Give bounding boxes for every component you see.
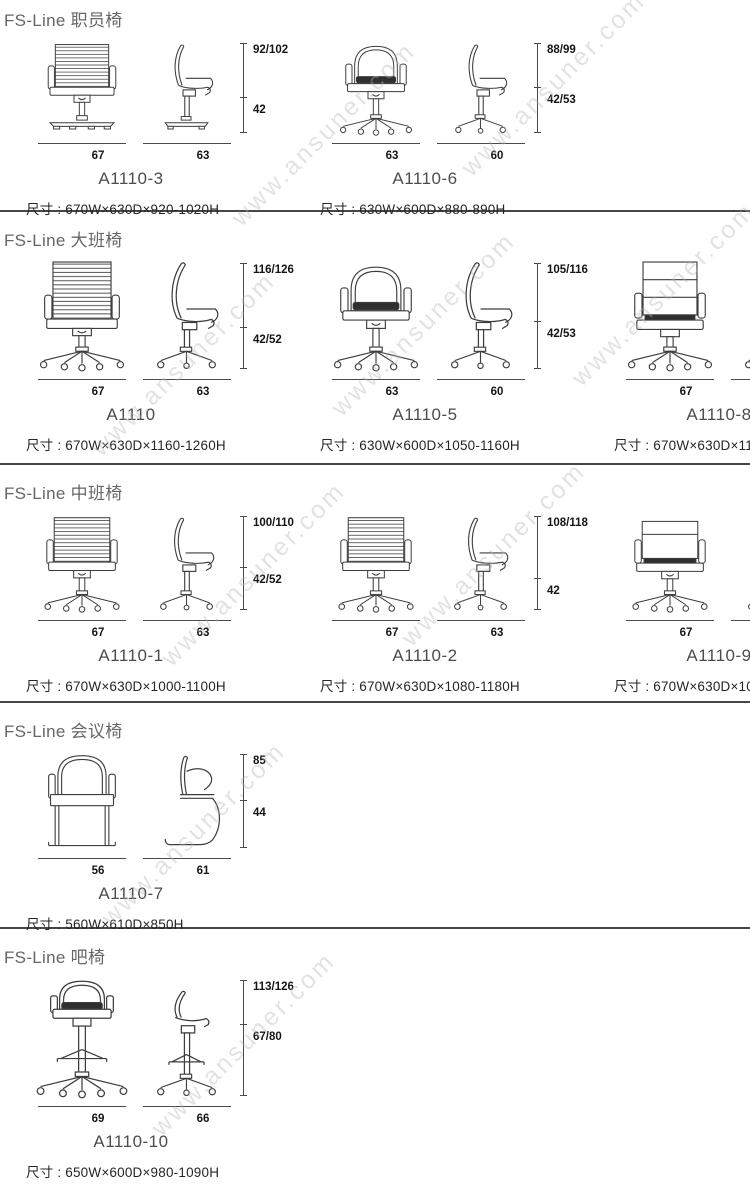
chair-card: 100/110 42/52 67 63 A1110-9 尺寸 : 670W×63… xyxy=(614,514,750,695)
width-dimension: 67 xyxy=(26,620,138,641)
section-midback-chairs: FS-Line 中班椅 100/110 42/52 67 63 A1110-1 … xyxy=(0,463,750,701)
width-dimension: 56 xyxy=(26,858,138,879)
dim-depth: 63 xyxy=(197,386,210,398)
dim-width: 69 xyxy=(92,1113,105,1125)
section-title: FS-Line 职员椅 xyxy=(4,6,750,31)
model-number: A1110-8 xyxy=(614,405,750,425)
chair-side-drawing xyxy=(138,514,236,614)
size-spec: 尺寸 : 630W×600D×880-890H xyxy=(320,198,588,218)
depth-dimension: 61 xyxy=(138,858,236,879)
chair-card: 105/116 42/53 63 60 A1110-5 尺寸 : 630W×60… xyxy=(320,261,588,454)
section-executive-chairs: FS-Line 大班椅 116/126 42/52 67 63 A1110 尺寸… xyxy=(0,210,750,463)
dim-seat-height: 67/80 xyxy=(253,1031,282,1043)
dim-depth: 63 xyxy=(197,627,210,639)
chair-side-drawing xyxy=(726,261,750,373)
dim-width: 56 xyxy=(92,865,105,877)
width-dimension: 69 xyxy=(26,1106,138,1127)
chair-front-drawing xyxy=(614,514,726,614)
dim-total-height: 113/126 xyxy=(253,981,294,993)
dim-seat-height: 42/52 xyxy=(253,334,282,346)
height-dimension: 108/118 42 xyxy=(530,514,588,614)
chair-card: 88/99 42/53 63 60 A1110-6 尺寸 : 630W×600D… xyxy=(320,41,588,218)
model-number: A1110-7 xyxy=(26,884,236,904)
chair-card: 113/126 67/80 69 66 A1110-10 尺寸 : 650W×6… xyxy=(26,978,294,1181)
dim-seat-height: 42 xyxy=(547,585,560,597)
size-spec: 尺寸 : 630W×600D×1050-1160H xyxy=(320,434,588,454)
chair-front-drawing xyxy=(26,978,138,1100)
height-dimension: 85 44 xyxy=(236,752,294,852)
dim-width: 67 xyxy=(92,627,105,639)
section-title: FS-Line 大班椅 xyxy=(4,226,750,251)
dim-total-height: 105/116 xyxy=(547,264,588,276)
catalog-page: www.ansuner.com www.ansuner.com www.ansu… xyxy=(0,0,750,1188)
width-dimension: 67 xyxy=(26,143,138,164)
depth-dimension: 66 xyxy=(138,1106,236,1127)
dim-total-height: 108/118 xyxy=(547,517,588,529)
dim-width: 67 xyxy=(92,150,105,162)
depth-dimension: 63 xyxy=(726,620,750,641)
section-staff-chairs: FS-Line 职员椅 92/102 42 67 63 A1110-3 尺寸 :… xyxy=(0,0,750,210)
chair-side-drawing xyxy=(138,978,236,1100)
section-conference-chairs: FS-Line 会议椅 85 44 56 61 A1110-7 尺寸 : 560… xyxy=(0,701,750,927)
width-dimension: 67 xyxy=(614,620,726,641)
height-dimension: 105/116 42/53 xyxy=(530,261,588,373)
chair-front-drawing xyxy=(26,261,138,373)
chair-card: 116/126 42/52 67 63 A1110-8 尺寸 : 670W×63… xyxy=(614,261,750,454)
dim-total-height: 116/126 xyxy=(253,264,294,276)
size-spec: 尺寸 : 650W×600D×980-1090H xyxy=(26,1161,294,1181)
section-bar-chairs: FS-Line 吧椅 113/126 67/80 69 66 A1110-10 … xyxy=(0,927,750,1188)
dim-seat-height: 44 xyxy=(253,807,266,819)
dim-seat-height: 42 xyxy=(253,104,266,116)
dim-seat-height: 42/52 xyxy=(253,574,282,586)
depth-dimension: 63 xyxy=(138,620,236,641)
section-title: FS-Line 中班椅 xyxy=(4,479,750,504)
model-number: A1110-2 xyxy=(320,646,530,666)
depth-dimension: 60 xyxy=(432,379,530,400)
height-dimension: 116/126 42/52 xyxy=(236,261,294,373)
dim-depth: 63 xyxy=(197,150,210,162)
chair-card: 108/118 42 67 63 A1110-2 尺寸 : 670W×630D×… xyxy=(320,514,588,695)
chair-front-drawing xyxy=(320,41,432,137)
model-number: A1110-5 xyxy=(320,405,530,425)
model-number: A1110-6 xyxy=(320,169,530,189)
dim-depth: 61 xyxy=(197,865,210,877)
dim-depth: 60 xyxy=(491,150,504,162)
chair-side-drawing xyxy=(138,41,236,137)
width-dimension: 67 xyxy=(614,379,726,400)
dim-width: 63 xyxy=(386,150,399,162)
size-spec: 尺寸 : 670W×630D×1080-1180H xyxy=(320,675,588,695)
chair-front-drawing xyxy=(26,514,138,614)
dim-width: 67 xyxy=(92,386,105,398)
size-spec: 尺寸 : 670W×630D×1160-1260H xyxy=(614,434,750,454)
chair-card: 85 44 56 61 A1110-7 尺寸 : 560W×610D×850H xyxy=(26,752,294,933)
chair-front-drawing xyxy=(320,514,432,614)
dim-width: 63 xyxy=(386,386,399,398)
chair-front-drawing xyxy=(614,261,726,373)
depth-dimension: 63 xyxy=(432,620,530,641)
dim-total-height: 100/110 xyxy=(253,517,294,529)
dim-depth: 63 xyxy=(491,627,504,639)
dim-width: 67 xyxy=(680,627,693,639)
depth-dimension: 63 xyxy=(726,379,750,400)
chair-side-drawing xyxy=(432,261,530,373)
model-number: A1110-3 xyxy=(26,169,236,189)
chair-side-drawing xyxy=(726,514,750,614)
size-spec: 尺寸 : 670W×630D×1000-1100H xyxy=(26,675,294,695)
model-number: A1110-10 xyxy=(26,1132,236,1152)
depth-dimension: 60 xyxy=(432,143,530,164)
height-dimension: 88/99 42/53 xyxy=(530,41,588,137)
dim-seat-height: 42/53 xyxy=(547,328,576,340)
size-spec: 尺寸 : 560W×610D×850H xyxy=(26,913,294,933)
size-spec: 尺寸 : 670W×630D×1000-1100H xyxy=(614,675,750,695)
chair-front-drawing xyxy=(320,261,432,373)
chair-side-drawing xyxy=(432,41,530,137)
width-dimension: 67 xyxy=(320,620,432,641)
size-spec: 尺寸 : 670W×630D×920-1020H xyxy=(26,198,294,218)
model-number: A1110-1 xyxy=(26,646,236,666)
dim-seat-height: 42/53 xyxy=(547,94,576,106)
dim-total-height: 85 xyxy=(253,755,266,767)
chair-front-drawing xyxy=(26,41,138,137)
chair-front-drawing xyxy=(26,752,138,852)
chair-card: 100/110 42/52 67 63 A1110-1 尺寸 : 670W×63… xyxy=(26,514,294,695)
height-dimension: 100/110 42/52 xyxy=(236,514,294,614)
chair-side-drawing xyxy=(432,514,530,614)
dim-width: 67 xyxy=(680,386,693,398)
dim-total-height: 88/99 xyxy=(547,44,576,56)
section-title: FS-Line 会议椅 xyxy=(4,717,750,742)
height-dimension: 92/102 42 xyxy=(236,41,294,137)
chair-card: 116/126 42/52 67 63 A1110 尺寸 : 670W×630D… xyxy=(26,261,294,454)
model-number: A1110 xyxy=(26,405,236,425)
section-title: FS-Line 吧椅 xyxy=(4,943,750,968)
height-dimension: 113/126 67/80 xyxy=(236,978,294,1100)
size-spec: 尺寸 : 670W×630D×1160-1260H xyxy=(26,434,294,454)
chair-card: 92/102 42 67 63 A1110-3 尺寸 : 670W×630D×9… xyxy=(26,41,294,218)
width-dimension: 63 xyxy=(320,379,432,400)
width-dimension: 67 xyxy=(26,379,138,400)
width-dimension: 63 xyxy=(320,143,432,164)
chair-side-drawing xyxy=(138,261,236,373)
depth-dimension: 63 xyxy=(138,379,236,400)
dim-depth: 60 xyxy=(491,386,504,398)
chair-side-drawing xyxy=(138,752,236,852)
depth-dimension: 63 xyxy=(138,143,236,164)
dim-depth: 66 xyxy=(197,1113,210,1125)
dim-width: 67 xyxy=(386,627,399,639)
dim-total-height: 92/102 xyxy=(253,44,288,56)
model-number: A1110-9 xyxy=(614,646,750,666)
